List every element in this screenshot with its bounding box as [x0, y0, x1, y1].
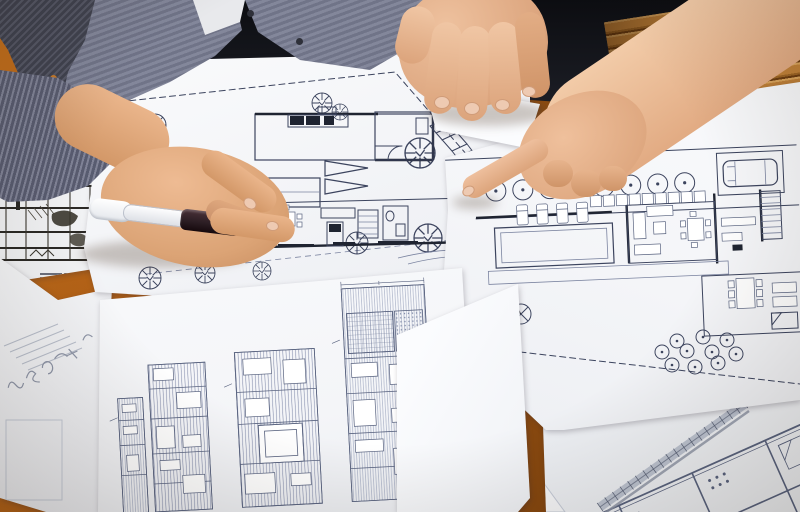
photo-architect-blueprints [0, 0, 800, 512]
vignette-overlay [0, 0, 800, 512]
